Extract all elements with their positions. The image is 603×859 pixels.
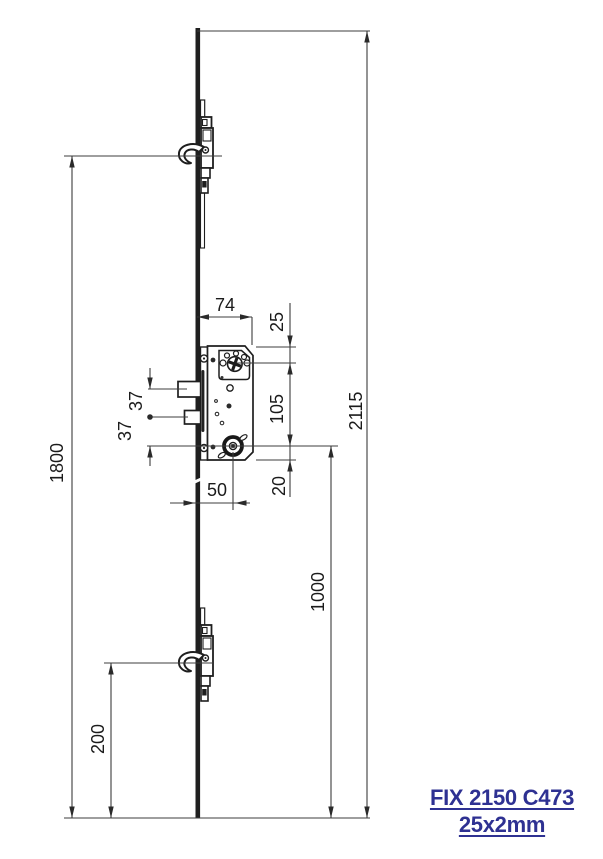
arrowhead xyxy=(108,663,113,675)
arrowhead xyxy=(147,378,152,390)
hole xyxy=(215,412,219,416)
arrowhead xyxy=(364,807,369,819)
rivet xyxy=(211,445,216,450)
arrowhead xyxy=(287,460,292,472)
arrowhead xyxy=(364,31,369,43)
hole xyxy=(227,385,233,391)
arrowhead xyxy=(287,363,292,375)
product-title-block: FIX 2150 C473 25x2mm xyxy=(403,784,601,838)
hole xyxy=(227,404,232,409)
hole xyxy=(220,421,224,425)
dim-label-1800: 1800 xyxy=(47,443,67,483)
arrowhead xyxy=(108,807,113,819)
screw-dot xyxy=(203,357,205,359)
dim-label-20: 20 xyxy=(269,476,289,496)
arrowhead xyxy=(287,336,292,348)
dim-label-105: 105 xyxy=(267,394,287,424)
hole xyxy=(234,351,239,356)
dim-label-25: 25 xyxy=(267,312,287,332)
arrowhead xyxy=(184,500,196,505)
dim-label-2115: 2115 xyxy=(346,392,366,431)
faceplate-slot xyxy=(201,370,204,432)
hole xyxy=(220,360,226,366)
rail-channel xyxy=(201,193,205,248)
technical-drawing-page: 2115 1800 200 1000 74 50 25 105 20 37 37… xyxy=(0,0,603,859)
arrowhead xyxy=(69,156,74,168)
rivet xyxy=(211,358,216,363)
screw-dot xyxy=(203,447,205,449)
dim-label-1000: 1000 xyxy=(308,572,328,612)
product-size-link[interactable]: 25x2mm xyxy=(459,812,545,837)
hole xyxy=(225,353,230,358)
product-model-link[interactable]: FIX 2150 C473 xyxy=(430,785,574,810)
dim-label-200: 200 xyxy=(88,724,108,754)
dim-label-37-lower: 37 xyxy=(115,421,135,441)
arrowhead xyxy=(69,807,74,819)
dim-dot-37 xyxy=(147,414,153,420)
arrowhead xyxy=(328,446,333,458)
hole xyxy=(215,400,218,403)
dim-label-37-upper: 37 xyxy=(126,391,146,411)
multipoint-lock-drawing: 2115 1800 200 1000 74 50 25 105 20 37 37 xyxy=(0,0,603,859)
arrowhead xyxy=(240,314,252,319)
arrowhead xyxy=(287,435,292,447)
dim-label-50: 50 xyxy=(207,480,227,500)
arrowhead xyxy=(147,446,152,458)
dim-label-74: 74 xyxy=(215,295,235,315)
hole xyxy=(242,355,247,360)
hole xyxy=(221,376,224,379)
arrowhead xyxy=(235,500,247,505)
arrowhead xyxy=(328,807,333,819)
